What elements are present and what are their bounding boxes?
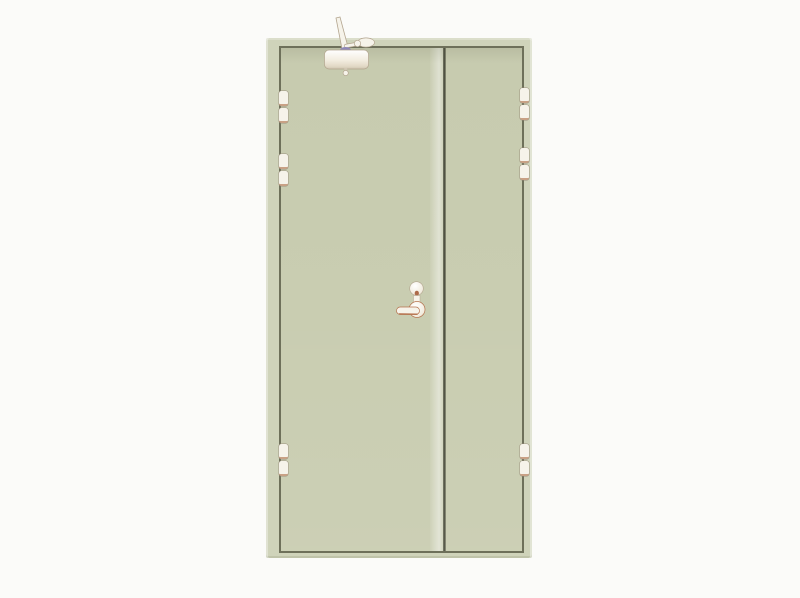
inactive-leaf (446, 48, 522, 551)
keyhole (415, 291, 419, 296)
hinge-barrel (279, 108, 288, 123)
hinge-right-middle (520, 148, 529, 180)
hinge-left-middle (279, 154, 288, 186)
hinge-barrel (520, 88, 529, 103)
hinge-barrel (279, 461, 288, 476)
hinge-right-top (520, 88, 529, 120)
closer-shoe-ball (354, 40, 360, 46)
hinge-barrel (279, 154, 288, 169)
hinge-left-bottom (279, 444, 288, 476)
hinge-barrel (520, 461, 529, 476)
closer-body (325, 50, 369, 69)
hinge-barrel (520, 444, 529, 459)
hinge-barrel (520, 148, 529, 163)
door-handle (393, 278, 432, 324)
product-photo (0, 0, 800, 598)
hinge-barrel (279, 444, 288, 459)
door-frame (266, 38, 532, 558)
hinge-right-bottom (520, 444, 529, 476)
hinge-barrel (520, 105, 529, 120)
hinge-barrel (279, 171, 288, 186)
hinge-barrel (279, 91, 288, 106)
hinge-left-top (279, 91, 288, 123)
closer-screw (343, 70, 348, 75)
door-closer (320, 14, 380, 76)
hinge-barrel (520, 165, 529, 180)
